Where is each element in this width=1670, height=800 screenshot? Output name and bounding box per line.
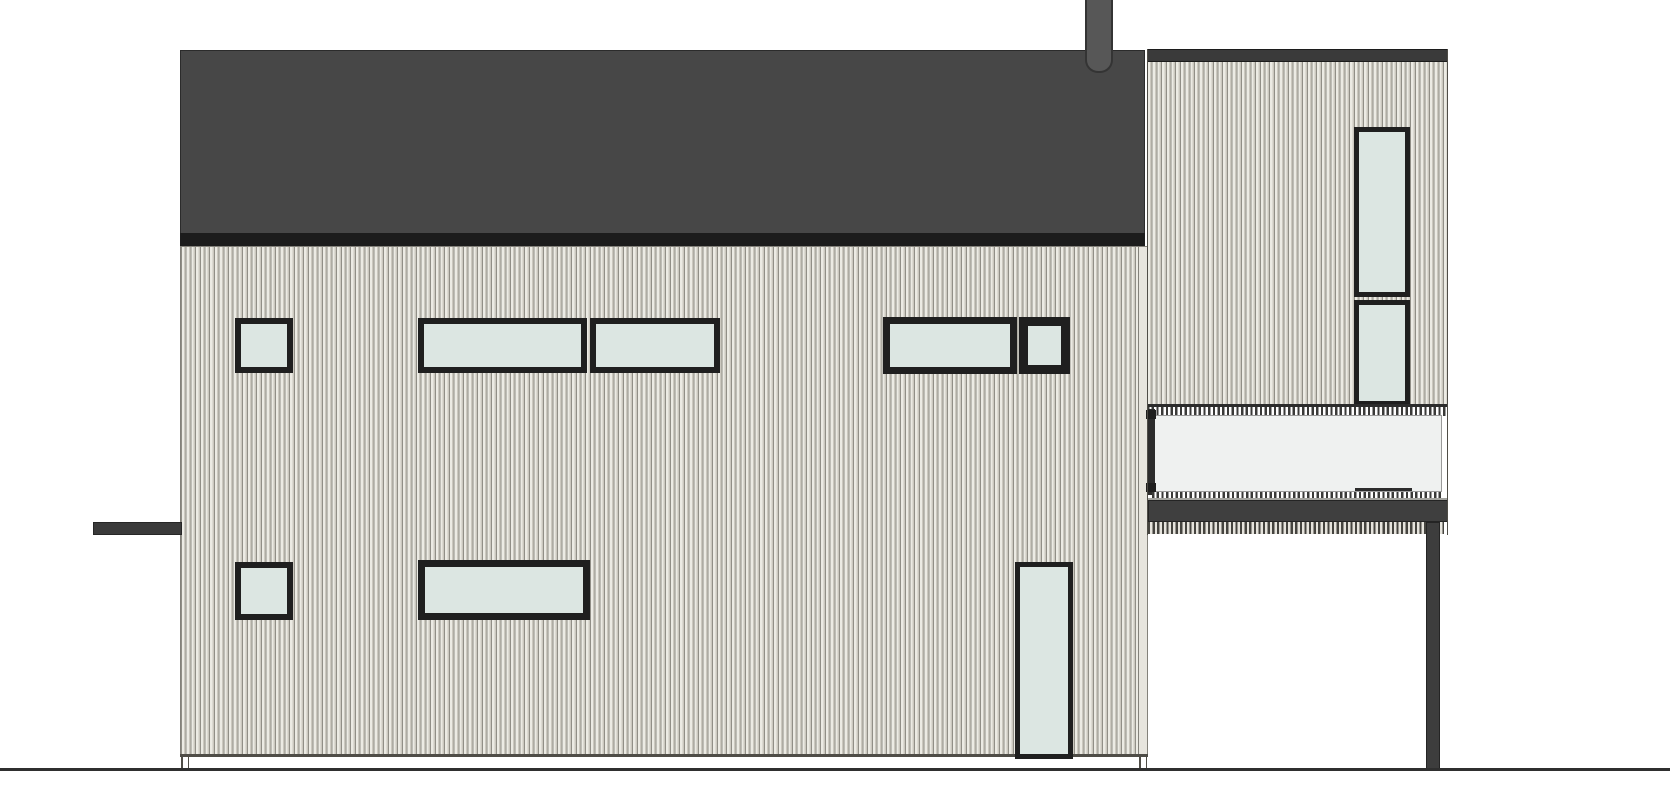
foundation-notch-left-a (181, 755, 183, 769)
wing-soffit-hatch (1148, 522, 1444, 534)
wing-top-band (1147, 49, 1448, 62)
support-post (1426, 522, 1440, 769)
elevation-canvas (0, 0, 1670, 800)
roof-pipe-chimney (1085, 0, 1113, 73)
window-lower-square-left (235, 562, 293, 620)
window-upper-square-left (235, 318, 293, 373)
wing-right-edge (1447, 49, 1449, 535)
window-upper-wide-left-b (590, 318, 720, 373)
window-lower-wide (418, 560, 590, 620)
main-roof (180, 50, 1145, 235)
wing-left-edge (1147, 49, 1149, 535)
ground-line (0, 768, 1670, 771)
window-upper-wide-right (883, 317, 1017, 374)
balcony-sill-line (1355, 488, 1412, 491)
facade-bottom-edge (180, 754, 1148, 757)
window-upper-square-right (1019, 317, 1070, 374)
balcony-slab (1148, 500, 1448, 522)
window-upper-wide-left-a (418, 318, 587, 373)
foundation-notch-left-b (188, 755, 190, 769)
wing-window-upper (1354, 127, 1410, 297)
window-lower-tall (1015, 562, 1073, 759)
foundation-notch-right-a (1139, 755, 1141, 769)
foundation-notch-right-b (1146, 755, 1148, 769)
main-roof-fascia (180, 233, 1145, 246)
balcony-glass-panel (1152, 415, 1442, 492)
left-beam (93, 522, 182, 535)
wing-window-lower (1354, 300, 1410, 406)
